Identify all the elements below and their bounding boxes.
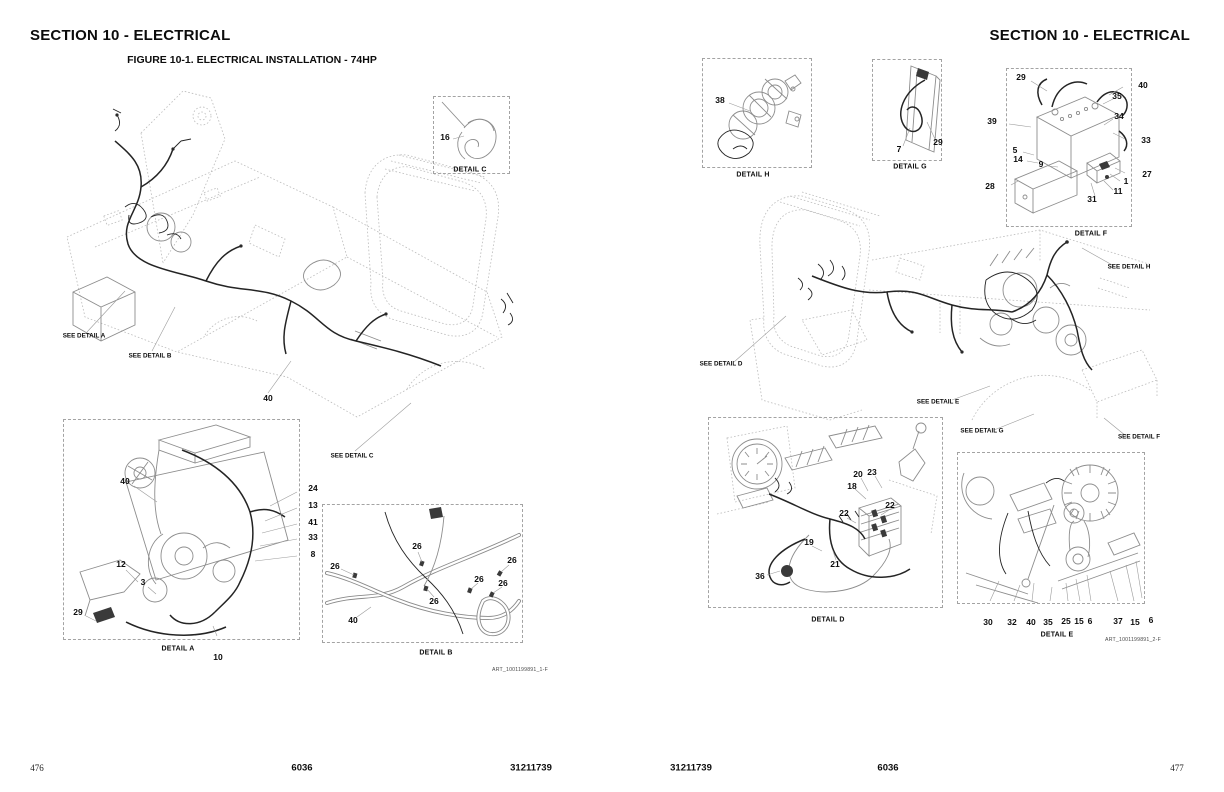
page-number-right: 477 xyxy=(1170,763,1184,773)
callout-number: 13 xyxy=(308,500,317,510)
figure-title: FIGURE 10-1. ELECTRICAL INSTALLATION - 7… xyxy=(127,54,377,66)
detail-f-art xyxy=(1007,69,1131,226)
detail-b-art xyxy=(323,505,522,642)
callout-number: 8 xyxy=(311,549,316,559)
section-header-right: SECTION 10 - ELECTRICAL xyxy=(990,27,1190,44)
callout-number: 41 xyxy=(308,517,317,527)
detail-d-box xyxy=(708,417,943,608)
detail-e-box xyxy=(957,452,1145,604)
section-header-left: SECTION 10 - ELECTRICAL xyxy=(30,27,230,44)
detail-c-box xyxy=(433,96,510,174)
model-number-right: 6036 xyxy=(877,763,898,774)
callout-number: 33 xyxy=(1141,135,1150,145)
manual-spread: SECTION 10 - ELECTRICAL SECTION 10 - ELE… xyxy=(0,0,1224,792)
art-ref-right: ART_1001199891_2-F xyxy=(1105,637,1161,643)
page-number-left: 476 xyxy=(30,763,44,773)
detail-c-art xyxy=(434,97,509,173)
callout-number: 35 xyxy=(1043,617,1052,627)
callout-number: 32 xyxy=(1007,617,1016,627)
detail-b-box xyxy=(322,504,523,643)
callout-number: 15 xyxy=(1130,617,1139,627)
detail-caption: DETAIL E xyxy=(1041,632,1074,639)
part-number-left: 31211739 xyxy=(510,763,552,774)
callout-number: 6 xyxy=(1088,616,1093,626)
detail-a-box xyxy=(63,419,300,640)
detail-caption: DETAIL A xyxy=(162,646,195,653)
callout-number: 39 xyxy=(987,116,996,126)
callout-number: 40 xyxy=(1026,617,1035,627)
callout-number: 25 xyxy=(1061,616,1070,626)
detail-h-box xyxy=(702,58,812,168)
detail-a-art xyxy=(64,420,299,639)
callout-number: 15 xyxy=(1074,616,1083,626)
detail-d-art xyxy=(709,418,942,607)
detail-e-art xyxy=(958,453,1144,603)
callout-number: 37 xyxy=(1113,616,1122,626)
callout-number: 40 xyxy=(1138,80,1147,90)
callout-number: 6 xyxy=(1149,615,1154,625)
part-number-right: 31211739 xyxy=(670,763,712,774)
callout-number: 30 xyxy=(983,617,992,627)
detail-g-art xyxy=(873,60,941,160)
art-ref-left: ART_1001199891_1-F xyxy=(492,667,548,673)
detail-f-box xyxy=(1006,68,1132,227)
callout-number: 33 xyxy=(308,532,317,542)
detail-caption: DETAIL D xyxy=(811,617,844,624)
model-number-left: 6036 xyxy=(291,763,312,774)
detail-g-box xyxy=(872,59,942,161)
detail-caption: DETAIL B xyxy=(419,650,452,657)
detail-h-art xyxy=(703,59,811,167)
callout-number: 10 xyxy=(213,652,222,662)
